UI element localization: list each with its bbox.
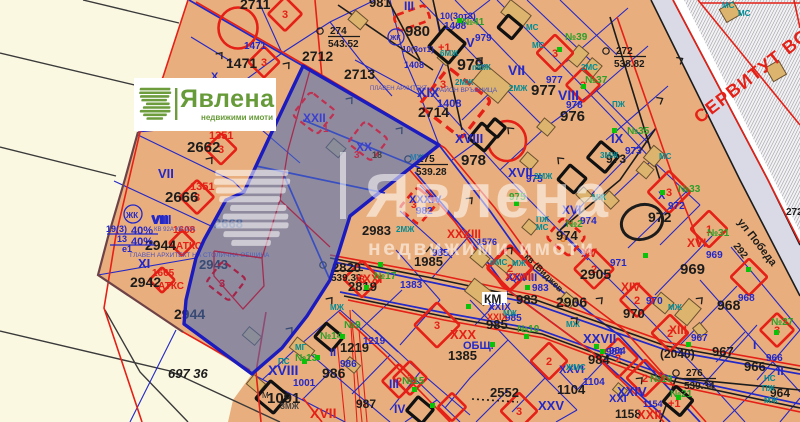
svg-text:6МЖ: 6МЖ [440, 49, 459, 58]
svg-text:973: 973 [625, 146, 642, 157]
svg-text:XXII: XXII [303, 111, 326, 125]
svg-text:272: 272 [616, 46, 633, 57]
svg-text:2712: 2712 [302, 48, 333, 64]
svg-text:недвижими имоти: недвижими имоти [368, 237, 593, 260]
svg-text:1471: 1471 [226, 55, 257, 71]
svg-text:979: 979 [475, 33, 492, 44]
svg-text:МС: МС [722, 1, 735, 10]
svg-text:967: 967 [691, 333, 708, 344]
svg-text:недвижими имоти: недвижими имоти [201, 113, 273, 122]
svg-text:1383: 1383 [400, 280, 423, 291]
svg-text:2МЖ: 2МЖ [455, 78, 474, 87]
svg-text:НС: НС [764, 374, 776, 383]
svg-text:984: 984 [606, 347, 623, 358]
svg-text:968: 968 [738, 293, 755, 304]
svg-text:КВ 92А КВ 92А: КВ 92А КВ 92А [154, 227, 195, 233]
svg-text:МЖ: МЖ [566, 320, 581, 329]
svg-text:969: 969 [706, 250, 723, 261]
svg-text:1408: 1408 [404, 60, 424, 70]
svg-text:(2040): (2040) [660, 347, 695, 361]
svg-text:40%: 40% [131, 236, 153, 248]
svg-text:1001: 1001 [293, 378, 316, 389]
svg-text:274: 274 [330, 26, 347, 37]
svg-text:276: 276 [686, 368, 703, 379]
svg-text:ПС: ПС [278, 357, 290, 366]
svg-text:986: 986 [340, 359, 357, 370]
svg-text:IV: IV [394, 402, 405, 416]
svg-text:№14: №14 [320, 331, 343, 342]
svg-text:538.82: 538.82 [614, 59, 645, 70]
svg-text:МС: МС [659, 152, 672, 161]
svg-text:№21: №21 [670, 389, 693, 400]
svg-text:1408: 1408 [437, 98, 461, 110]
svg-text:РАЙОН ВРЪБНИЦА: РАЙОН ВРЪБНИЦА [436, 85, 498, 94]
svg-text:2: 2 [546, 356, 552, 368]
svg-text:18: 18 [372, 150, 382, 160]
svg-text:2711: 2711 [240, 0, 271, 12]
svg-text:970: 970 [623, 306, 645, 321]
svg-text:XXVIII: XXVIII [505, 272, 534, 283]
svg-text:987: 987 [356, 397, 376, 411]
svg-text:№10: №10 [517, 324, 540, 335]
svg-text:VII: VII [508, 62, 525, 78]
svg-text:2МЖ: 2МЖ [509, 84, 528, 93]
svg-text:ОБЩ.: ОБЩ. [463, 340, 494, 352]
svg-text:МЖ: МЖ [503, 309, 518, 318]
svg-text:10(3от1): 10(3от1) [402, 45, 434, 54]
svg-text:19(3): 19(3) [106, 224, 127, 234]
svg-text:IX: IX [611, 131, 624, 146]
svg-text:1351: 1351 [190, 181, 214, 193]
svg-text:III: III [389, 377, 399, 391]
svg-text:1104: 1104 [583, 377, 605, 388]
svg-text:МС: МС [738, 9, 751, 18]
svg-text:№27: №27 [771, 317, 794, 328]
svg-text:V: V [466, 35, 475, 50]
svg-text:ПЖ: ПЖ [612, 100, 626, 109]
svg-text:2906: 2906 [556, 294, 587, 310]
svg-text:е1: е1 [122, 244, 132, 254]
svg-text:3: 3 [516, 406, 522, 418]
svg-text:МЖ: МЖ [764, 396, 779, 405]
svg-text:XXII: XXII [637, 407, 662, 422]
svg-text:XXVII: XXVII [583, 331, 616, 346]
svg-text:3: 3 [354, 150, 360, 161]
svg-text:II: II [330, 347, 336, 359]
svg-text:XXIV: XXIV [617, 384, 647, 399]
svg-text:МЖ: МЖ [330, 303, 345, 312]
svg-text:971: 971 [610, 258, 627, 269]
svg-text:1351: 1351 [209, 130, 233, 142]
svg-text:ЖМС: ЖМС [565, 363, 586, 372]
svg-text:1665: 1665 [152, 268, 175, 279]
svg-text:№19: №19 [650, 374, 673, 385]
svg-text:977: 977 [546, 75, 563, 86]
svg-text:ПЖ: ПЖ [762, 384, 776, 393]
svg-text:XXV: XXV [538, 398, 564, 413]
svg-text:МЖ: МЖ [668, 303, 683, 312]
svg-text:3: 3 [219, 278, 225, 290]
svg-text:№37: №37 [585, 75, 608, 86]
svg-text:I: I [753, 338, 756, 352]
svg-text:XVII: XVII [310, 405, 336, 421]
svg-text:1: 1 [323, 124, 329, 135]
svg-text:2713: 2713 [344, 66, 375, 82]
svg-text:972: 972 [668, 201, 685, 212]
svg-text:VII: VII [158, 166, 174, 181]
svg-text:АТКС: АТКС [158, 281, 184, 292]
svg-text:970: 970 [646, 296, 663, 307]
svg-text:VIII: VIII [151, 213, 169, 227]
svg-text:№35: №35 [627, 126, 650, 137]
svg-text:XIV: XIV [621, 280, 640, 294]
svg-text:966: 966 [744, 359, 766, 374]
svg-text:№17: №17 [374, 271, 397, 282]
svg-text:XVIII: XVIII [455, 131, 483, 146]
svg-text:№41: №41 [462, 17, 485, 28]
svg-text:3: 3 [434, 320, 440, 332]
svg-text:XVI: XVI [687, 236, 706, 250]
svg-text:3: 3 [666, 187, 672, 199]
svg-text:272: 272 [786, 207, 800, 218]
svg-text:967: 967 [712, 344, 734, 359]
svg-text:969: 969 [680, 261, 705, 278]
svg-text:981: 981 [369, 0, 391, 10]
svg-text:III: III [404, 0, 414, 13]
svg-text:XIII: XIII [669, 323, 687, 337]
svg-text:2МС: 2МС [581, 63, 598, 72]
svg-text:пМЖ: пМЖ [472, 63, 491, 72]
svg-text:2552: 2552 [490, 385, 519, 400]
svg-text:980: 980 [405, 23, 430, 40]
svg-text:ЗМЖ: ЗМЖ [280, 402, 300, 411]
svg-text:№9: №9 [344, 320, 361, 331]
svg-text:II: II [777, 364, 784, 378]
svg-text:978: 978 [566, 100, 583, 111]
svg-text:Явлена: Явлена [180, 85, 275, 113]
svg-text:1219: 1219 [363, 336, 386, 347]
svg-text:МС: МС [526, 23, 539, 32]
svg-text:№15: №15 [402, 376, 425, 387]
svg-text:ПЛАВЕН АРХИТЕКТ: ПЛАВЕН АРХИТЕКТ [370, 86, 427, 92]
svg-text:МС: МС [532, 41, 545, 50]
svg-text:697 36: 697 36 [168, 366, 209, 381]
svg-text:983: 983 [516, 292, 538, 307]
svg-text:983: 983 [532, 283, 549, 294]
svg-text:3МЖ: 3МЖ [600, 151, 619, 160]
svg-text:1104: 1104 [557, 382, 586, 397]
svg-text:№33: №33 [678, 184, 701, 195]
svg-text:2905: 2905 [580, 266, 611, 282]
svg-text:966: 966 [766, 353, 783, 364]
svg-text:3: 3 [282, 9, 288, 21]
svg-text:543.52: 543.52 [328, 39, 359, 50]
svg-text:1471: 1471 [244, 41, 267, 52]
svg-text:ЖК: ЖК [389, 35, 401, 42]
svg-text:13: 13 [117, 234, 127, 244]
svg-text:МЖ: МЖ [512, 259, 527, 268]
svg-text:№31: №31 [707, 228, 730, 239]
svg-text:№39: №39 [565, 32, 588, 43]
svg-text:ЖК: ЖК [125, 211, 138, 220]
svg-text:3: 3 [261, 57, 267, 69]
svg-text:МГ: МГ [295, 343, 307, 352]
